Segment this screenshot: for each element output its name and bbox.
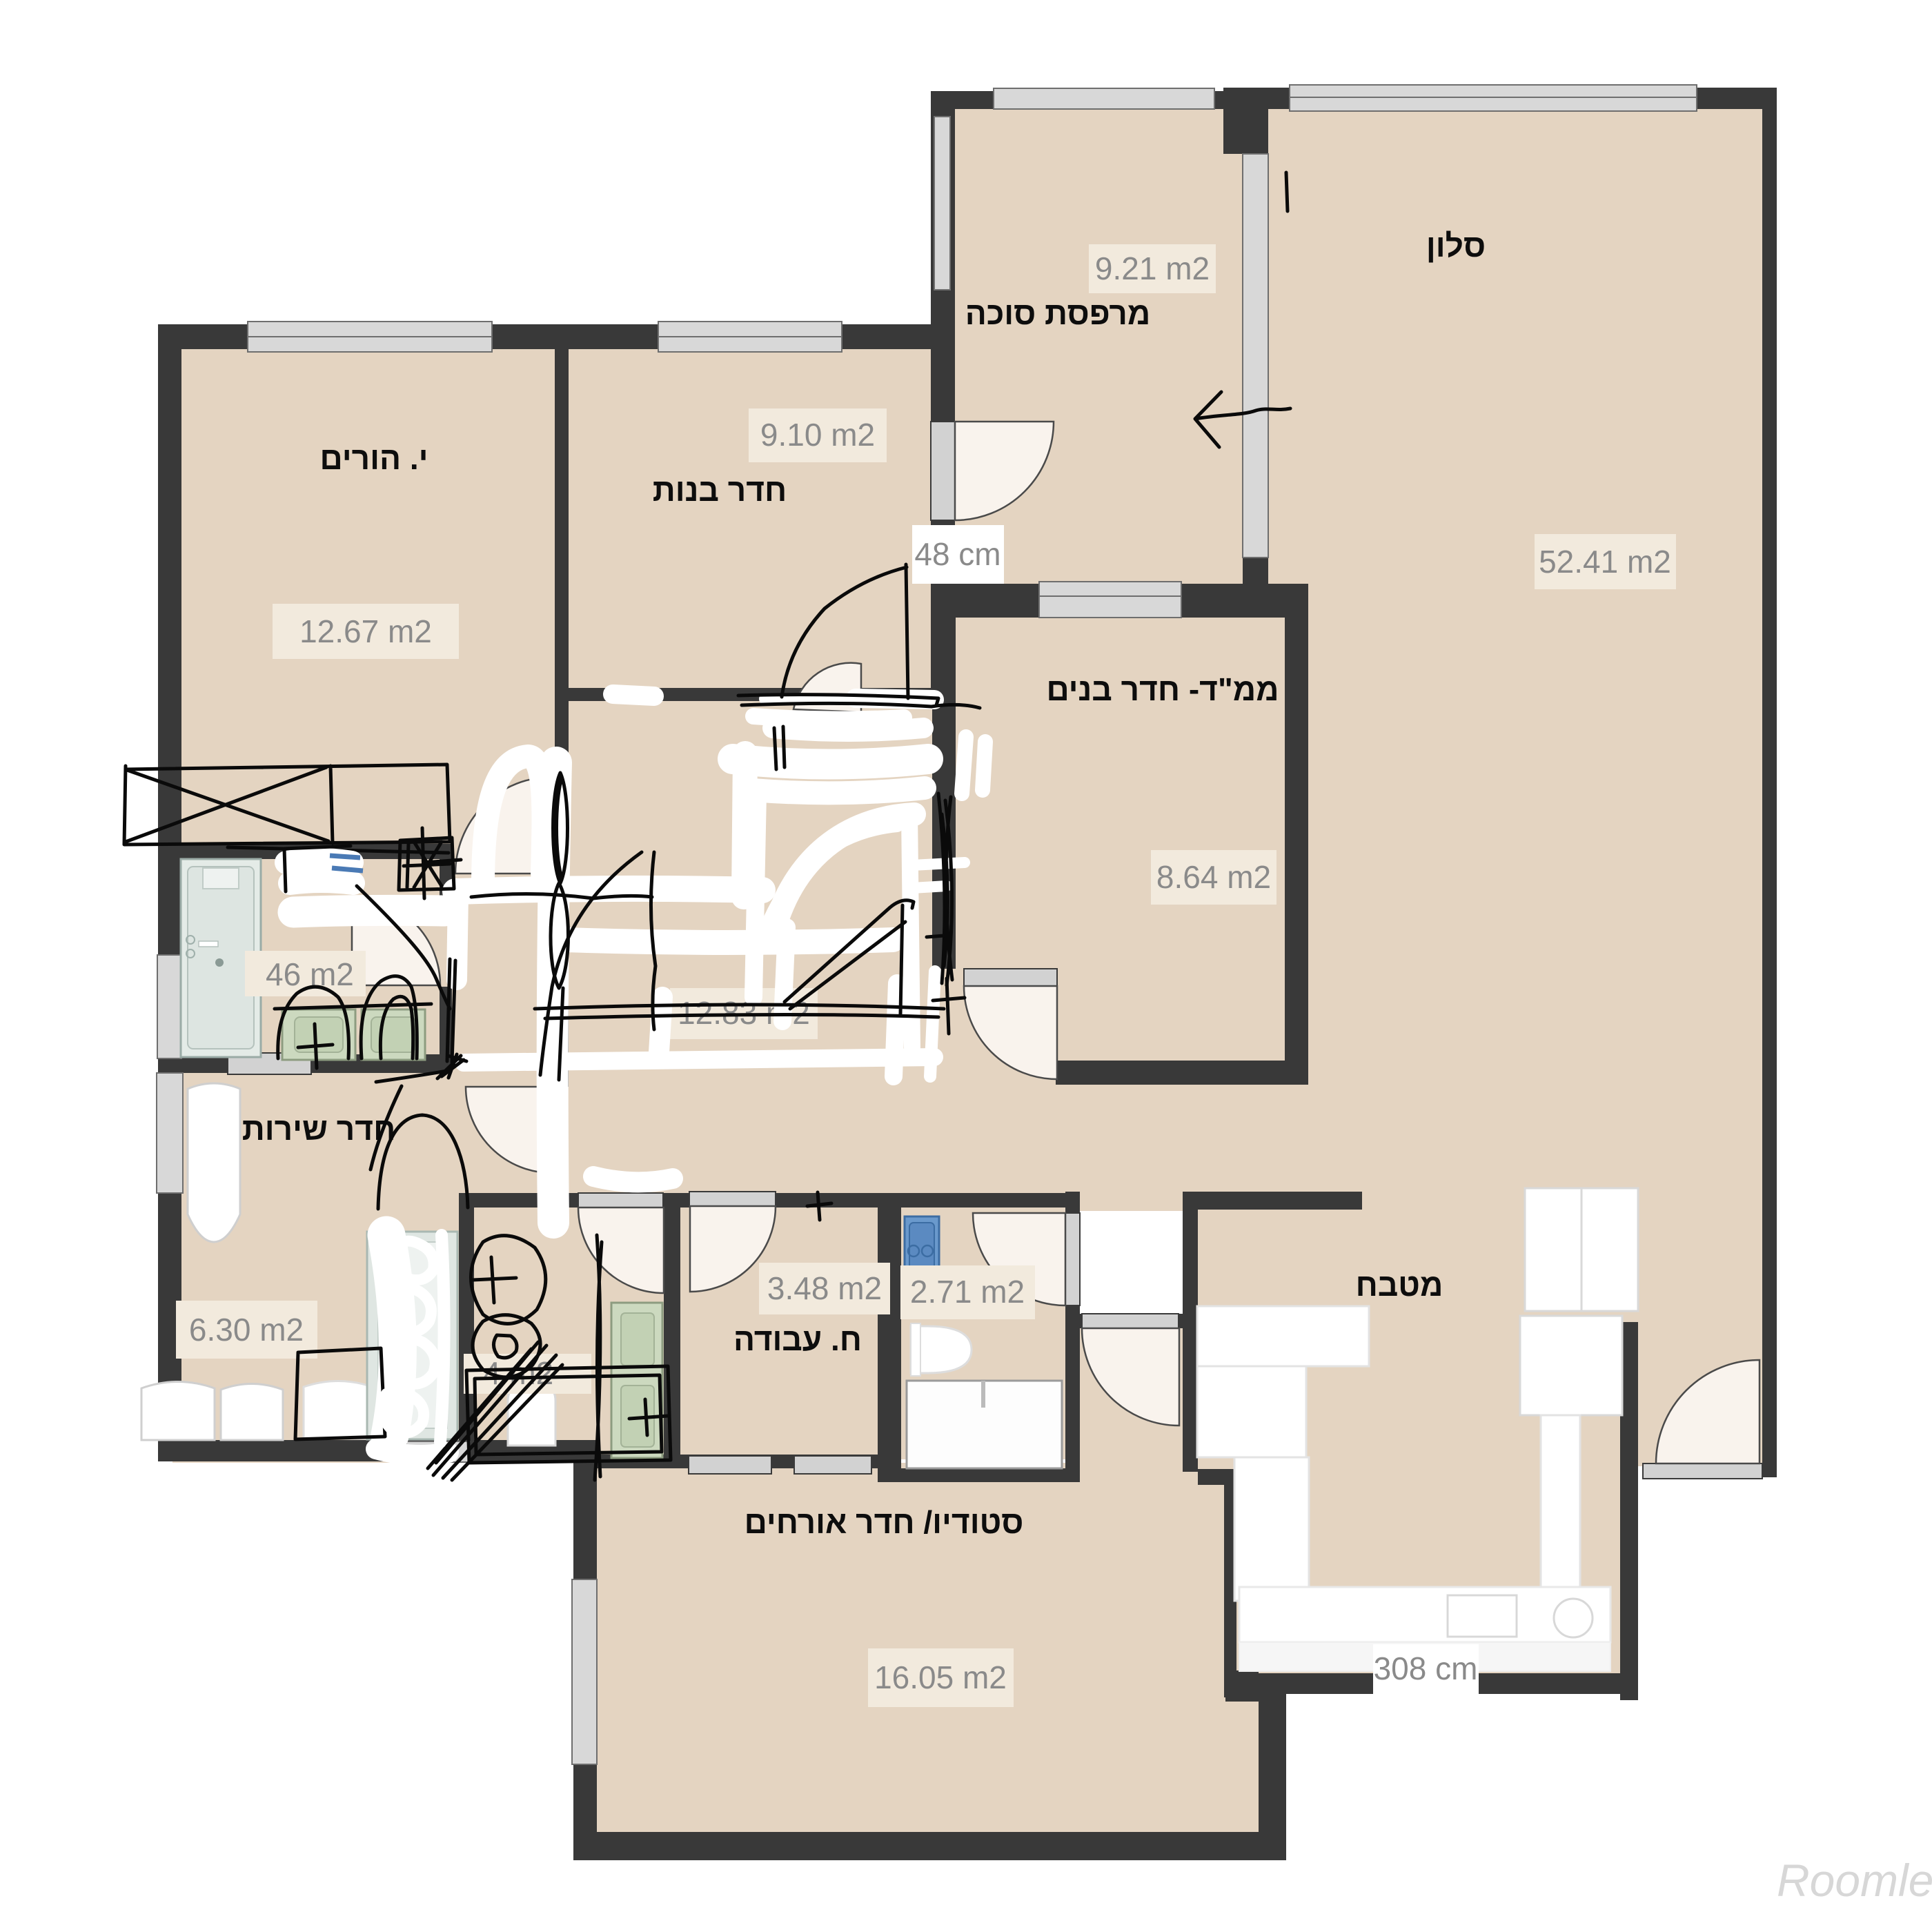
svg-text:52.41 m2: 52.41 m2	[1539, 544, 1671, 580]
svg-text:מרפסת סוכה: מרפסת סוכה	[965, 295, 1151, 331]
svg-text:י. הורים: י. הורים	[319, 440, 428, 476]
svg-text:סטודיו/ חדר אורחים: סטודיו/ חדר אורחים	[745, 1504, 1024, 1540]
svg-text:חדר בנות: חדר בנות	[653, 472, 787, 508]
svg-text:9.21 m2: 9.21 m2	[1095, 250, 1210, 286]
svg-text:12.67 m2: 12.67 m2	[299, 613, 432, 649]
svg-text:9.10 m2: 9.10 m2	[760, 417, 875, 453]
svg-text:סלון: סלון	[1426, 228, 1486, 264]
svg-text:308 cm: 308 cm	[1374, 1650, 1478, 1686]
svg-text:48 cm: 48 cm	[914, 536, 1000, 572]
svg-text:Roomle: Roomle	[1777, 1855, 1932, 1906]
svg-text:16.05 m2: 16.05 m2	[874, 1659, 1007, 1695]
svg-text:ממ"ד- חדר בנים: ממ"ד- חדר בנים	[1046, 671, 1279, 707]
svg-text:6.30 m2: 6.30 m2	[189, 1312, 304, 1348]
svg-text:8.64 m2: 8.64 m2	[1156, 859, 1271, 895]
svg-text:חדר שירות: חדר שירות	[242, 1111, 396, 1147]
svg-text:3.48 m2: 3.48 m2	[767, 1270, 882, 1306]
svg-text:2.71 m2: 2.71 m2	[910, 1274, 1025, 1310]
svg-text:ח. עבודה: ח. עבודה	[733, 1321, 862, 1357]
svg-text:מטבח: מטבח	[1356, 1267, 1443, 1303]
